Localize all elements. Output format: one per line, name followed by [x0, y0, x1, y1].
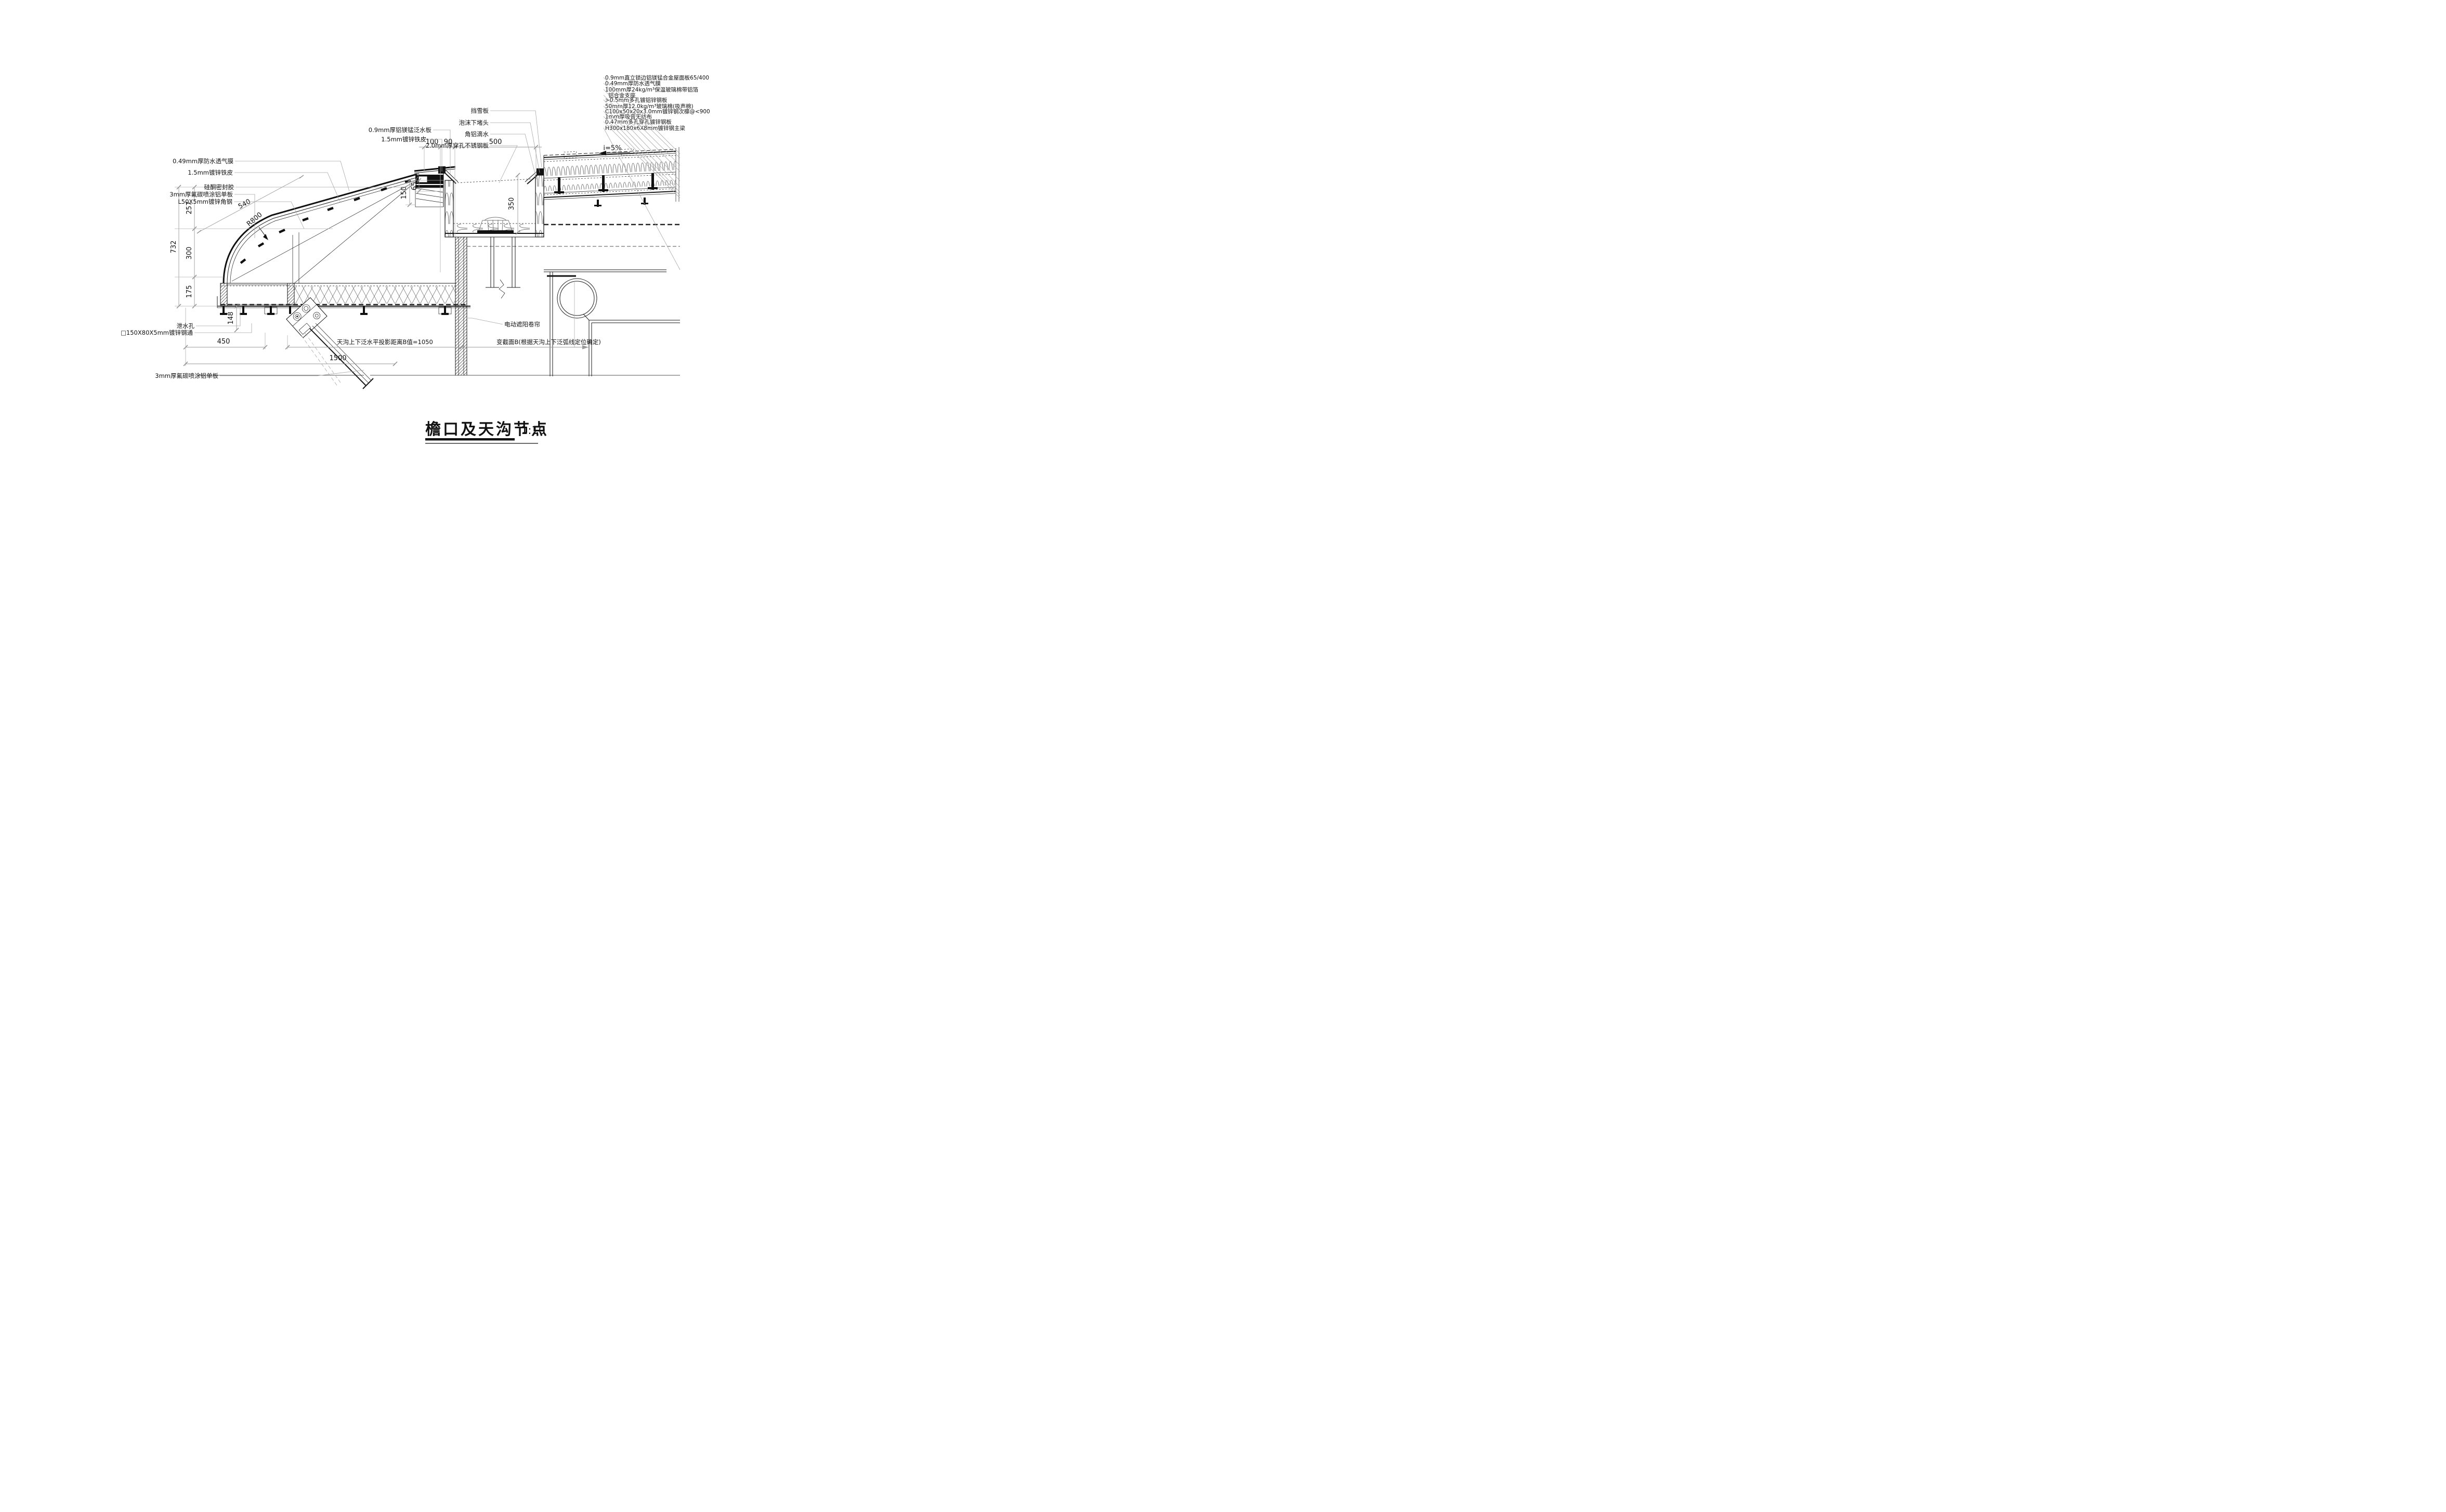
callout-foam-plug: 泡沫下堵头 — [459, 119, 489, 126]
dim-148: 148 — [227, 312, 235, 325]
eave-gutter-detail-drawing: i=5% 732 257 300 — [0, 0, 803, 496]
callout-angle-steel: L50X5mm镀锌角钢 — [178, 198, 232, 205]
callout-alu-panel-bottom: 3mm厚氟碳喷涂铝单板 — [155, 372, 218, 379]
drawing-scale: 1:10 — [521, 424, 545, 437]
callouts: 0.49mm厚防水透气膜 1.5mm镀锌铁皮 硅酮密封胶 3mm厚氟碳喷涂铝单板… — [121, 107, 601, 379]
callout-membrane: 0.49mm厚防水透气膜 — [173, 157, 233, 165]
callout-stainless: 2.0mm厚穿孔不锈钢板 — [426, 142, 489, 149]
dim-732: 732 — [170, 241, 178, 254]
callout-steel-tube: □150X80X5mm镀锌钢通 — [121, 329, 193, 336]
dim-540: 540 — [237, 198, 252, 211]
eave-section — [217, 174, 470, 315]
roof-section: i=5% — [544, 144, 679, 207]
dim-300: 300 — [186, 247, 193, 260]
callout-alu-panel: 3mm厚氟碳喷涂铝单板 — [169, 191, 233, 198]
callout-variable-section: 变截面B(根据天沟上下泛弧线定位确定) — [496, 338, 601, 346]
title-block: 檐口及天沟节点 1:10 — [425, 420, 549, 443]
callout-sheet-left: 1.5mm镀锌铁皮 — [188, 169, 233, 176]
dim-1500: 1500 — [329, 354, 346, 362]
callout-snow-guard: 挡雪板 — [471, 107, 489, 114]
dim-500: 500 — [489, 138, 502, 146]
callout-flashing: 0.9mm厚铝镁锰泛水板 — [369, 126, 432, 134]
dim-175: 175 — [186, 285, 193, 298]
drawing-sheet: i=5% 732 257 300 — [0, 0, 803, 496]
dim-150: 150 — [400, 187, 408, 200]
callout-drip: 角铝滴水 — [465, 130, 489, 138]
drain-pipes — [486, 237, 520, 287]
dim-350: 350 — [508, 198, 516, 211]
soffit-bolt-icons — [220, 307, 451, 315]
callout-projection: 天沟上下泛水平投影距离B值=1050 — [337, 338, 433, 346]
dim-450: 450 — [217, 338, 230, 346]
callout-sealant: 硅酮密封胶 — [204, 183, 234, 191]
title-underline-thick — [425, 438, 515, 441]
callout-sheet-top: 1.5mm镀锌铁皮 — [381, 136, 426, 143]
callout-shade: 电动遮阳卷帘 — [504, 321, 540, 328]
dim-65: 65 — [411, 182, 418, 191]
material-item: 0.49mm厚防水透气膜 — [605, 80, 661, 87]
break-line-icon — [499, 280, 505, 298]
callout-drain-hole: 泄水孔 — [177, 322, 195, 330]
